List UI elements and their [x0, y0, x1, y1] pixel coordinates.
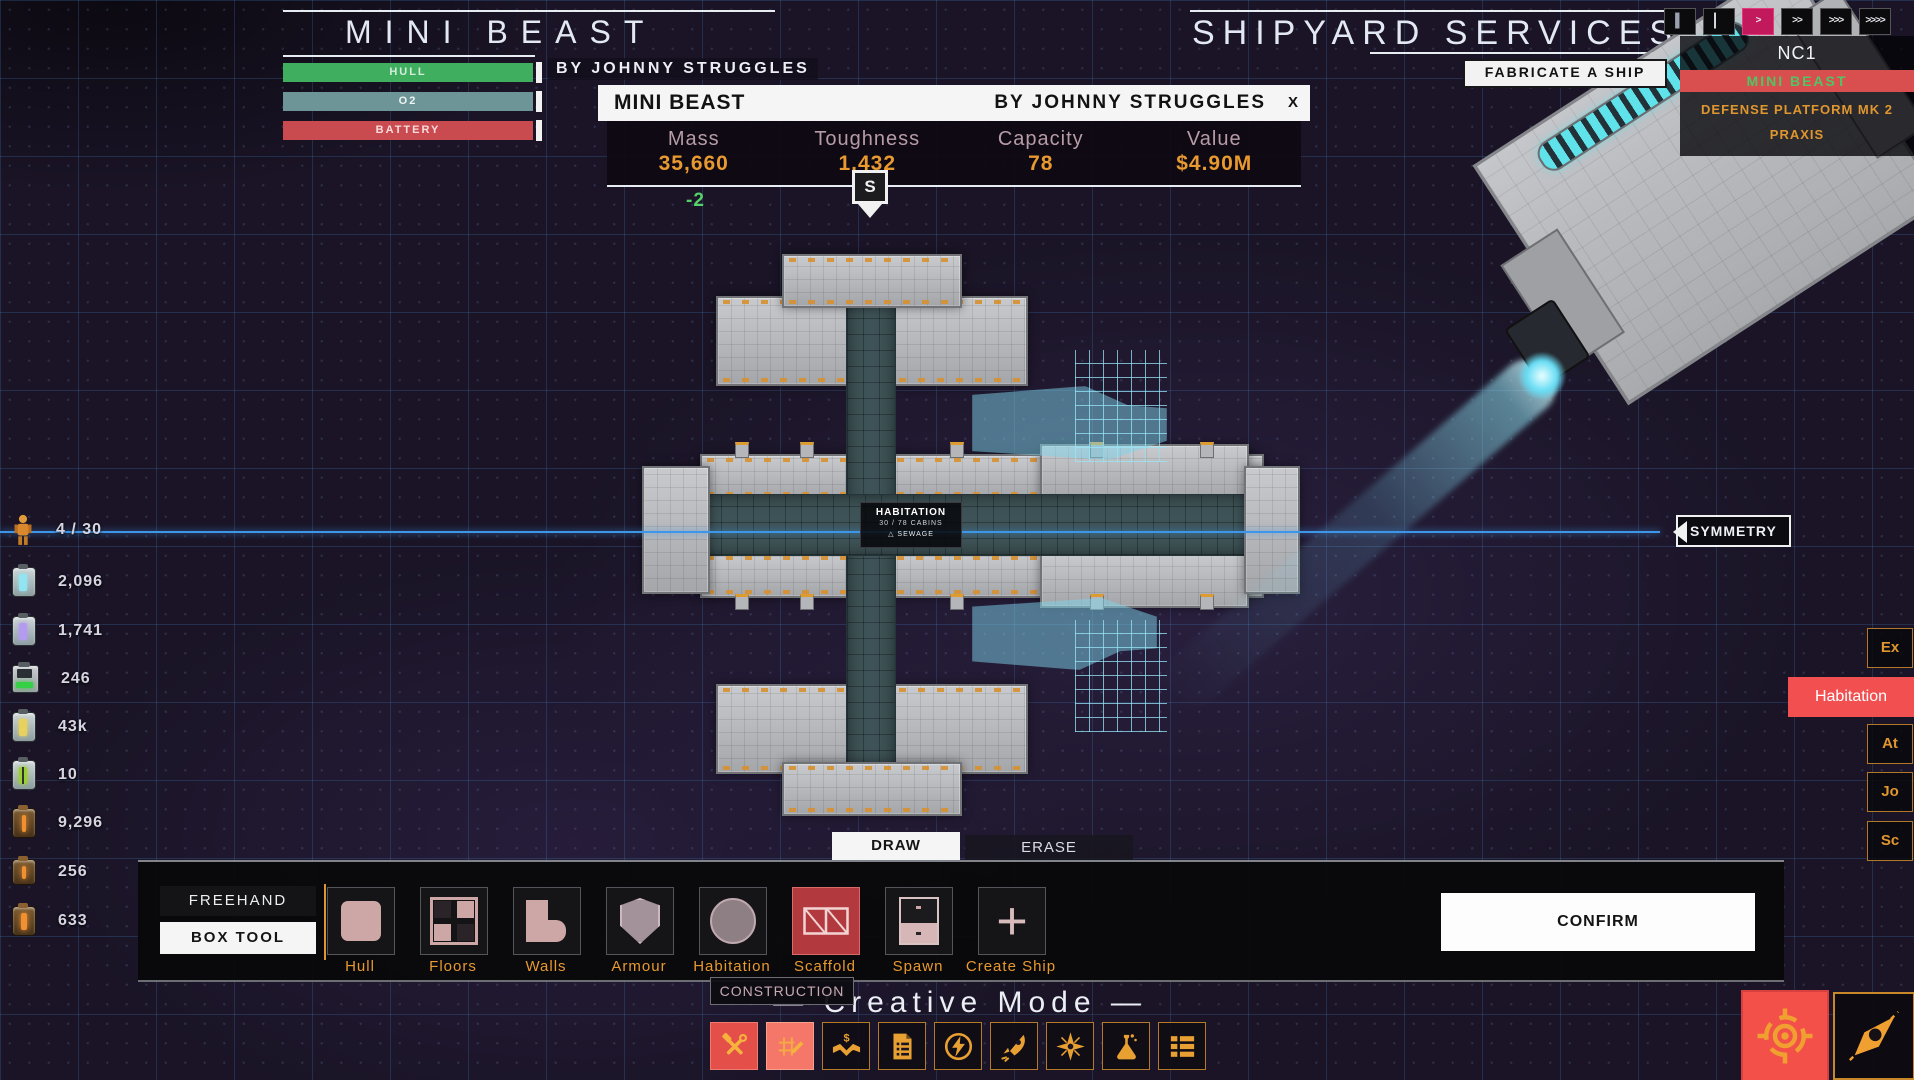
stat-capacity: Capacity 78: [954, 121, 1128, 185]
target-icon: [1755, 1006, 1815, 1066]
speed-1x-button[interactable]: >: [1742, 8, 1774, 35]
title-rule: [283, 55, 535, 57]
fleet-ship[interactable]: PRAXIS: [1680, 127, 1914, 142]
tab-ex[interactable]: Ex: [1867, 628, 1913, 668]
speed-4x-button[interactable]: >>>>: [1859, 8, 1891, 35]
sim-speed-controls: ▍ ▏ > >> >>> >>>>: [1664, 8, 1891, 35]
ship-module: [1040, 552, 1249, 608]
confirm-button[interactable]: CONFIRM: [1441, 893, 1755, 951]
shipyard-title: SHIPYARD SERVICES: [1192, 14, 1680, 53]
hull-bar: HULL: [283, 63, 533, 82]
engine-glow: [1518, 352, 1566, 400]
svg-text:$: $: [843, 1032, 849, 1044]
fuel-canister-icon: [12, 616, 36, 646]
pylon: [800, 442, 814, 458]
fleet-panel: NC1 MINI BEAST DEFENSE PLATFORM MK 2 PRA…: [1680, 36, 1914, 156]
habitation-icon: [710, 898, 756, 944]
spawn-marker[interactable]: S: [852, 170, 888, 218]
fleet-ship-selected[interactable]: MINI BEAST: [1680, 70, 1914, 92]
resource-row: 9,296: [12, 807, 103, 839]
pylon: [950, 594, 964, 610]
stat-value: 35,660: [607, 152, 781, 176]
close-icon[interactable]: X: [1288, 85, 1298, 121]
armour-icon: [620, 898, 660, 944]
resource-count: 43k: [58, 718, 88, 736]
navigation-icon: [1055, 1031, 1086, 1062]
tool-habitation[interactable]: [699, 887, 767, 955]
ship-info-stats: Mass 35,660 Toughness 1,432 Capacity 78 …: [607, 121, 1301, 187]
ship-module: [642, 466, 710, 594]
ship-module: [892, 684, 1028, 774]
tab-draw[interactable]: DRAW: [832, 832, 960, 860]
tab-habitation[interactable]: Habitation: [1788, 677, 1914, 717]
inventory-menu-button[interactable]: [1158, 1022, 1206, 1070]
tab-jo[interactable]: Jo: [1867, 772, 1913, 812]
tab-erase[interactable]: ERASE: [965, 835, 1133, 860]
stat-label: Toughness: [781, 128, 955, 151]
step-button[interactable]: ▏: [1703, 8, 1735, 35]
resource-row: 1,741: [12, 615, 103, 647]
o2-bar: O2: [283, 92, 533, 111]
scaffold-grid: [1075, 350, 1167, 462]
system-name: NC1: [1680, 36, 1914, 70]
spawn-marker-letter: S: [852, 170, 888, 204]
pylon: [735, 442, 749, 458]
tool-label: Create Ship: [956, 958, 1066, 975]
stat-value: 78: [954, 152, 1128, 176]
power-menu-button[interactable]: [934, 1022, 982, 1070]
resource-row: 10: [12, 759, 78, 791]
walls-icon: [526, 900, 568, 942]
stat-label: Value: [1128, 128, 1302, 151]
resource-count: 246: [61, 670, 91, 688]
pylon: [1200, 594, 1214, 610]
o2-bar-label: O2: [399, 95, 418, 107]
hull-icon: [341, 901, 381, 941]
shipyard-screen: HABITATION 30 / 78 CABINS △ SEWAGE MINI …: [0, 0, 1914, 1080]
box-tool-mode-button[interactable]: BOX TOOL: [160, 922, 316, 954]
power-icon: [943, 1031, 974, 1062]
resource-row: 2,096: [12, 566, 103, 598]
trade-icon: $: [831, 1031, 862, 1062]
ship-navigation-button[interactable]: [1833, 992, 1914, 1080]
resource-row: 246: [12, 663, 91, 695]
tool-create-ship[interactable]: +: [978, 887, 1046, 955]
info-ship-author: BY JOHNNY STRUGGLES: [994, 85, 1266, 121]
habitation-cabins: 30 / 78 CABINS: [861, 520, 961, 527]
contracts-icon: [887, 1031, 918, 1062]
research-icon: [1111, 1031, 1142, 1062]
ship-module: [782, 762, 962, 816]
resource-count: 9,296: [58, 814, 103, 832]
pause-button[interactable]: ▍: [1664, 8, 1696, 35]
ship-module: [716, 296, 852, 386]
resource-row: 256: [12, 856, 88, 888]
toolbar-divider: [324, 884, 326, 960]
machine-part-icon: [12, 808, 36, 838]
title-rule: [1190, 10, 1665, 12]
spawn-marker-pointer: [858, 204, 882, 218]
thrusters-icon: [999, 1031, 1030, 1062]
trade-menu-button[interactable]: $: [822, 1022, 870, 1070]
ship-info-panel: MINI BEAST BY JOHNNY STRUGGLES X Mass 35…: [598, 85, 1310, 187]
navigation-menu-button[interactable]: [1046, 1022, 1094, 1070]
ship-author: BY JOHNNY STRUGGLES: [548, 58, 818, 80]
battery-bar: BATTERY: [283, 121, 533, 140]
habitation-info-box: HABITATION 30 / 78 CABINS △ SEWAGE: [860, 502, 962, 548]
build-tools-menu-button[interactable]: [710, 1022, 758, 1070]
ship-module: [782, 254, 962, 308]
fleet-ship[interactable]: DEFENSE PLATFORM MK 2: [1680, 102, 1914, 117]
pylon: [800, 594, 814, 610]
research-menu-button[interactable]: [1102, 1022, 1150, 1070]
create-ship-icon: +: [996, 901, 1028, 941]
machine-part-icon: [12, 906, 36, 936]
tab-at[interactable]: At: [1867, 724, 1913, 764]
pylon: [1200, 442, 1214, 458]
title-rule: [283, 10, 775, 12]
stat-label: Mass: [607, 128, 781, 151]
construction-toolbar: FREEHAND BOX TOOL Hull Floors Walls Armo…: [138, 860, 1784, 982]
machine-part-icon: [12, 859, 36, 885]
ship-module: [892, 296, 1028, 386]
o2-canister-icon: [12, 567, 36, 597]
draw-plan-icon: [775, 1031, 806, 1062]
ship-status-bars: HULL O2 BATTERY: [283, 63, 533, 150]
contracts-menu-button[interactable]: [878, 1022, 926, 1070]
pylon: [735, 594, 749, 610]
habitation-warning: △ SEWAGE: [861, 530, 961, 538]
stat-mass: Mass 35,660: [607, 121, 781, 185]
resource-row: 633: [12, 905, 88, 937]
bio-canister-icon: [12, 760, 36, 790]
resource-count: 2,096: [58, 573, 103, 591]
inventory-icon: [1167, 1031, 1198, 1062]
pylon: [950, 442, 964, 458]
battery-bar-label: BATTERY: [376, 124, 441, 136]
crew-count: 4 / 30: [56, 521, 102, 539]
ship-nav-icon: [1845, 1007, 1903, 1065]
fabricate-ship-button[interactable]: FABRICATE A SHIP: [1463, 59, 1667, 88]
speed-3x-button[interactable]: >>>: [1820, 8, 1852, 35]
resource-count: 10: [58, 766, 78, 784]
scaffold-grid: [1075, 620, 1167, 732]
info-ship-name: MINI BEAST: [614, 91, 745, 114]
habitation-title: HABITATION: [861, 507, 961, 518]
draw-plan-menu-button[interactable]: [766, 1022, 814, 1070]
tool-spawn[interactable]: [885, 887, 953, 955]
ship-title: MINI BEAST: [345, 14, 656, 51]
stat-label: Capacity: [954, 128, 1128, 151]
crew-icon: [12, 514, 34, 546]
stat-value: Value $4.90M: [1128, 121, 1302, 185]
battery-icon: [12, 665, 39, 693]
tool-floors[interactable]: [420, 887, 488, 955]
scaffold-icon: [803, 907, 849, 935]
symmetry-toggle[interactable]: SYMMETRY: [1676, 515, 1791, 547]
tool-scaffold[interactable]: [792, 887, 860, 955]
resource-count: 1,741: [58, 622, 103, 640]
resource-count: 256: [58, 863, 88, 881]
stat-value: $4.90M: [1128, 152, 1302, 176]
resource-row: 4 / 30: [12, 514, 102, 546]
freehand-mode-button[interactable]: FREEHAND: [160, 886, 316, 916]
symmetry-axis-line: [0, 531, 1660, 533]
tab-sc[interactable]: Sc: [1867, 821, 1913, 861]
tool-walls[interactable]: [513, 887, 581, 955]
thrusters-menu-button[interactable]: [990, 1022, 1038, 1070]
speed-2x-button[interactable]: >>: [1781, 8, 1813, 35]
ship-info-header: MINI BEAST BY JOHNNY STRUGGLES X: [598, 85, 1310, 121]
tool-hull[interactable]: [327, 887, 395, 955]
target-mode-button[interactable]: [1741, 990, 1829, 1080]
gold-canister-icon: [12, 712, 36, 742]
spawn-icon: [899, 897, 939, 945]
resource-count: 633: [58, 912, 88, 930]
floors-icon: [430, 897, 478, 945]
resource-row: 43k: [12, 711, 88, 743]
tool-armour[interactable]: [606, 887, 674, 955]
hull-bar-label: HULL: [389, 66, 426, 78]
build-tools-icon: [719, 1031, 750, 1062]
category-label: CONSTRUCTION: [710, 977, 854, 1005]
delta-indicator: -2: [686, 190, 705, 212]
ship-module: [716, 684, 852, 774]
title-rule: [1370, 52, 1660, 54]
